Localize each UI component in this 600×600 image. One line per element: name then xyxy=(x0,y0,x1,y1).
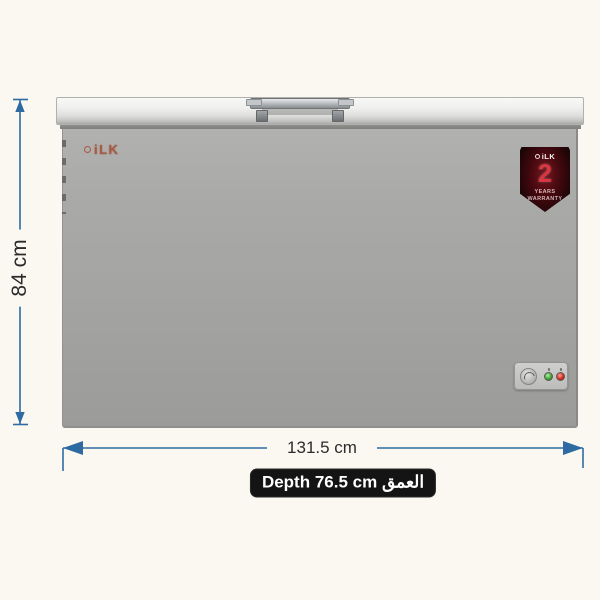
width-dimension-label: 131.5 cm xyxy=(267,437,377,459)
depth-label-arabic: العمق xyxy=(382,473,424,492)
dimension-arrows xyxy=(0,0,600,600)
depth-label-english: Depth 76.5 cm xyxy=(262,473,377,492)
product-dimension-diagram: iLK iLK 2 YEARS WARRANTY xyxy=(0,0,600,600)
depth-label: Depth 76.5 cm العمق xyxy=(251,470,435,497)
height-dimension-label: 84 cm xyxy=(6,229,34,306)
